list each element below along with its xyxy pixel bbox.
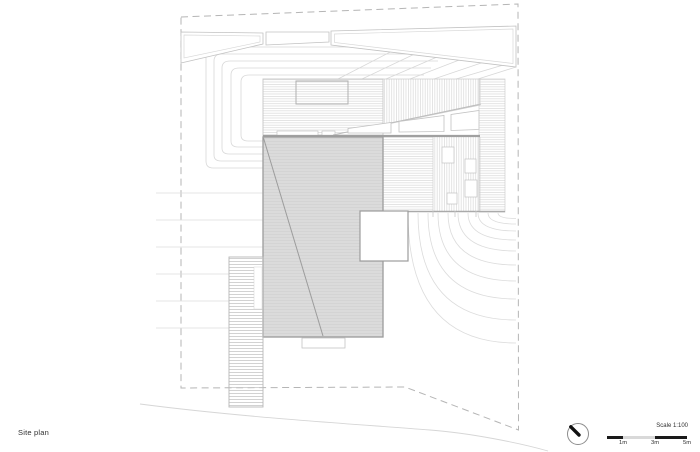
deck-threshold — [277, 131, 318, 136]
site-plan-drawing — [0, 0, 700, 452]
terrain-contours-right — [408, 213, 516, 343]
north-arrow-icon — [565, 421, 591, 447]
stair-landing — [254, 267, 262, 309]
drawing-sheet: Site plan Scale 1:100 1m 3m 5m — [0, 0, 700, 452]
terrace-opening — [442, 147, 454, 163]
planter-west — [181, 32, 263, 63]
terrace-opening — [465, 180, 477, 197]
exterior-stair — [229, 257, 263, 407]
courtyard — [360, 211, 408, 261]
terrace-opening — [447, 193, 457, 204]
south-step — [302, 338, 345, 348]
planter-mid — [266, 32, 329, 45]
terrain-contour-bottom — [140, 404, 548, 451]
clerestory-window — [451, 111, 479, 131]
side-deck-band — [479, 79, 505, 212]
sheet-title: Site plan — [18, 428, 49, 437]
terrace-opening — [465, 159, 476, 173]
